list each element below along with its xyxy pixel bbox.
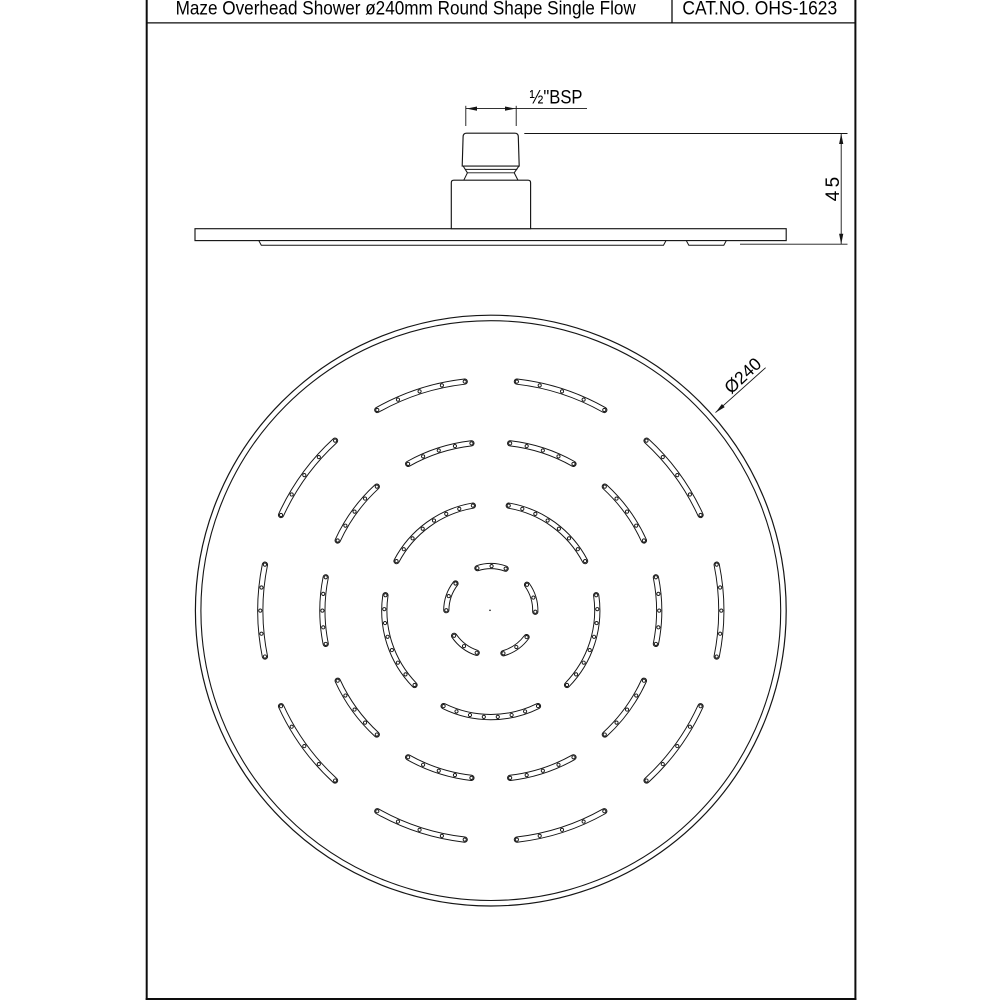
- svg-text:½"BSP: ½"BSP: [530, 87, 583, 109]
- svg-text:CAT.NO. OHS-1623: CAT.NO. OHS-1623: [682, 0, 837, 19]
- svg-text:Maze Overhead Shower ø240mm Ro: Maze Overhead Shower ø240mm Round Shape …: [176, 0, 636, 19]
